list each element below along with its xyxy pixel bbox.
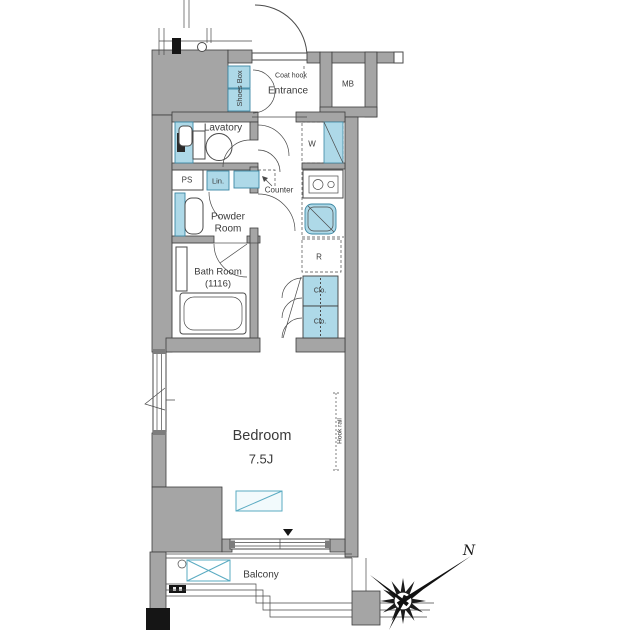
window-cap-bottom [153, 430, 166, 435]
washer-label: W [308, 140, 316, 149]
balcony-window-jamb-right [325, 541, 330, 549]
north-arrow [397, 556, 471, 606]
wall-corner-block [152, 487, 222, 552]
coat-hook-label: Coat hook [275, 73, 307, 80]
counter-label: Counter [265, 186, 294, 195]
corridor-detail [159, 0, 252, 55]
balcony-label: Balcony [243, 570, 279, 581]
entrance-door-arc [255, 5, 307, 57]
vent-icon [169, 585, 186, 593]
wall-bath-bedroom [166, 338, 260, 352]
wall-right [345, 117, 358, 557]
corridor-post [172, 38, 181, 54]
meter-box-label: MB [342, 80, 354, 89]
wall-entrance-lavatory [172, 112, 258, 122]
bedroom-size-label: 7.5J [249, 452, 274, 467]
powder-door-arc-hall [258, 194, 295, 231]
vent-slot-2 [179, 587, 182, 591]
bathtub-outer [180, 293, 246, 334]
closet-area [282, 276, 338, 338]
toilet-tank-icon [193, 131, 205, 159]
entrance-label: Entrance [268, 86, 308, 97]
entrance-door-sill [252, 53, 307, 60]
hall-door-arc-2 [258, 150, 280, 172]
vanity-side [175, 193, 185, 236]
window-cap-top [153, 349, 166, 354]
balcony-area [166, 554, 434, 625]
closet-folding-doors [282, 277, 302, 338]
lavatory-label: Lavatory [204, 123, 242, 134]
bath-room-label-1: Bath Room [194, 267, 242, 278]
wall-hall-seg1 [250, 122, 258, 140]
refrigerator-label: R [316, 253, 322, 262]
bath-room-area [172, 243, 258, 338]
powder-room-label-2: Room [215, 224, 242, 235]
floor-plan-drawing: Coat hook Entrance Shoes Box MB Lavatory… [0, 0, 640, 640]
wall-left-mid [152, 115, 172, 352]
vent-slot-1 [173, 587, 176, 591]
hook-rail-label: Hook rail [337, 418, 344, 444]
north-label: N [462, 543, 476, 559]
window-direction-triangle [283, 529, 293, 536]
vanity-basin [185, 198, 203, 234]
bedroom-label: Bedroom [233, 428, 292, 444]
wall-top-left [228, 50, 252, 63]
floor-plan-canvas: Coat hook Entrance Shoes Box MB Lavatory… [0, 0, 640, 640]
wall-end-cap [394, 52, 403, 63]
wall-left-below-window [152, 433, 166, 487]
powder-room-area [175, 193, 203, 236]
wall-balcony-left [150, 552, 166, 610]
pipe-space-label: PS [182, 176, 193, 185]
hall-door-arc [258, 125, 289, 156]
wall-window-right-jamb [330, 539, 345, 552]
wall-black-corner [146, 608, 170, 630]
powder-room-label-1: Powder [211, 212, 246, 223]
shoes-box-label: Shoes Box [235, 70, 244, 107]
bath-room-label-2: (1116) [205, 279, 231, 290]
balcony-column [352, 591, 380, 625]
linen-label: Lin. [212, 177, 224, 186]
wall-entrance-right-jamb [307, 52, 320, 63]
counter-box [234, 171, 259, 188]
closet-upper-label: Clo. [314, 288, 327, 295]
lavatory-basin [179, 126, 192, 146]
wall-powder-bath-left [172, 236, 214, 243]
balcony-window-jamb-left [230, 541, 235, 549]
outdoor-unit-cross [187, 560, 230, 581]
wall-hall-seg3 [250, 228, 258, 338]
bath-shelf [176, 247, 187, 291]
closet-lower-label: Clo. [314, 319, 327, 326]
wall-upper-left-block [152, 50, 228, 115]
drain-circle-corridor [198, 43, 207, 52]
wall-lavatory-ps [172, 163, 258, 170]
wall-closet-bedroom [296, 338, 345, 352]
drain-circle-balcony [178, 560, 186, 568]
wall-kitchen-divider [302, 163, 345, 169]
toilet-bowl-icon [206, 134, 232, 161]
